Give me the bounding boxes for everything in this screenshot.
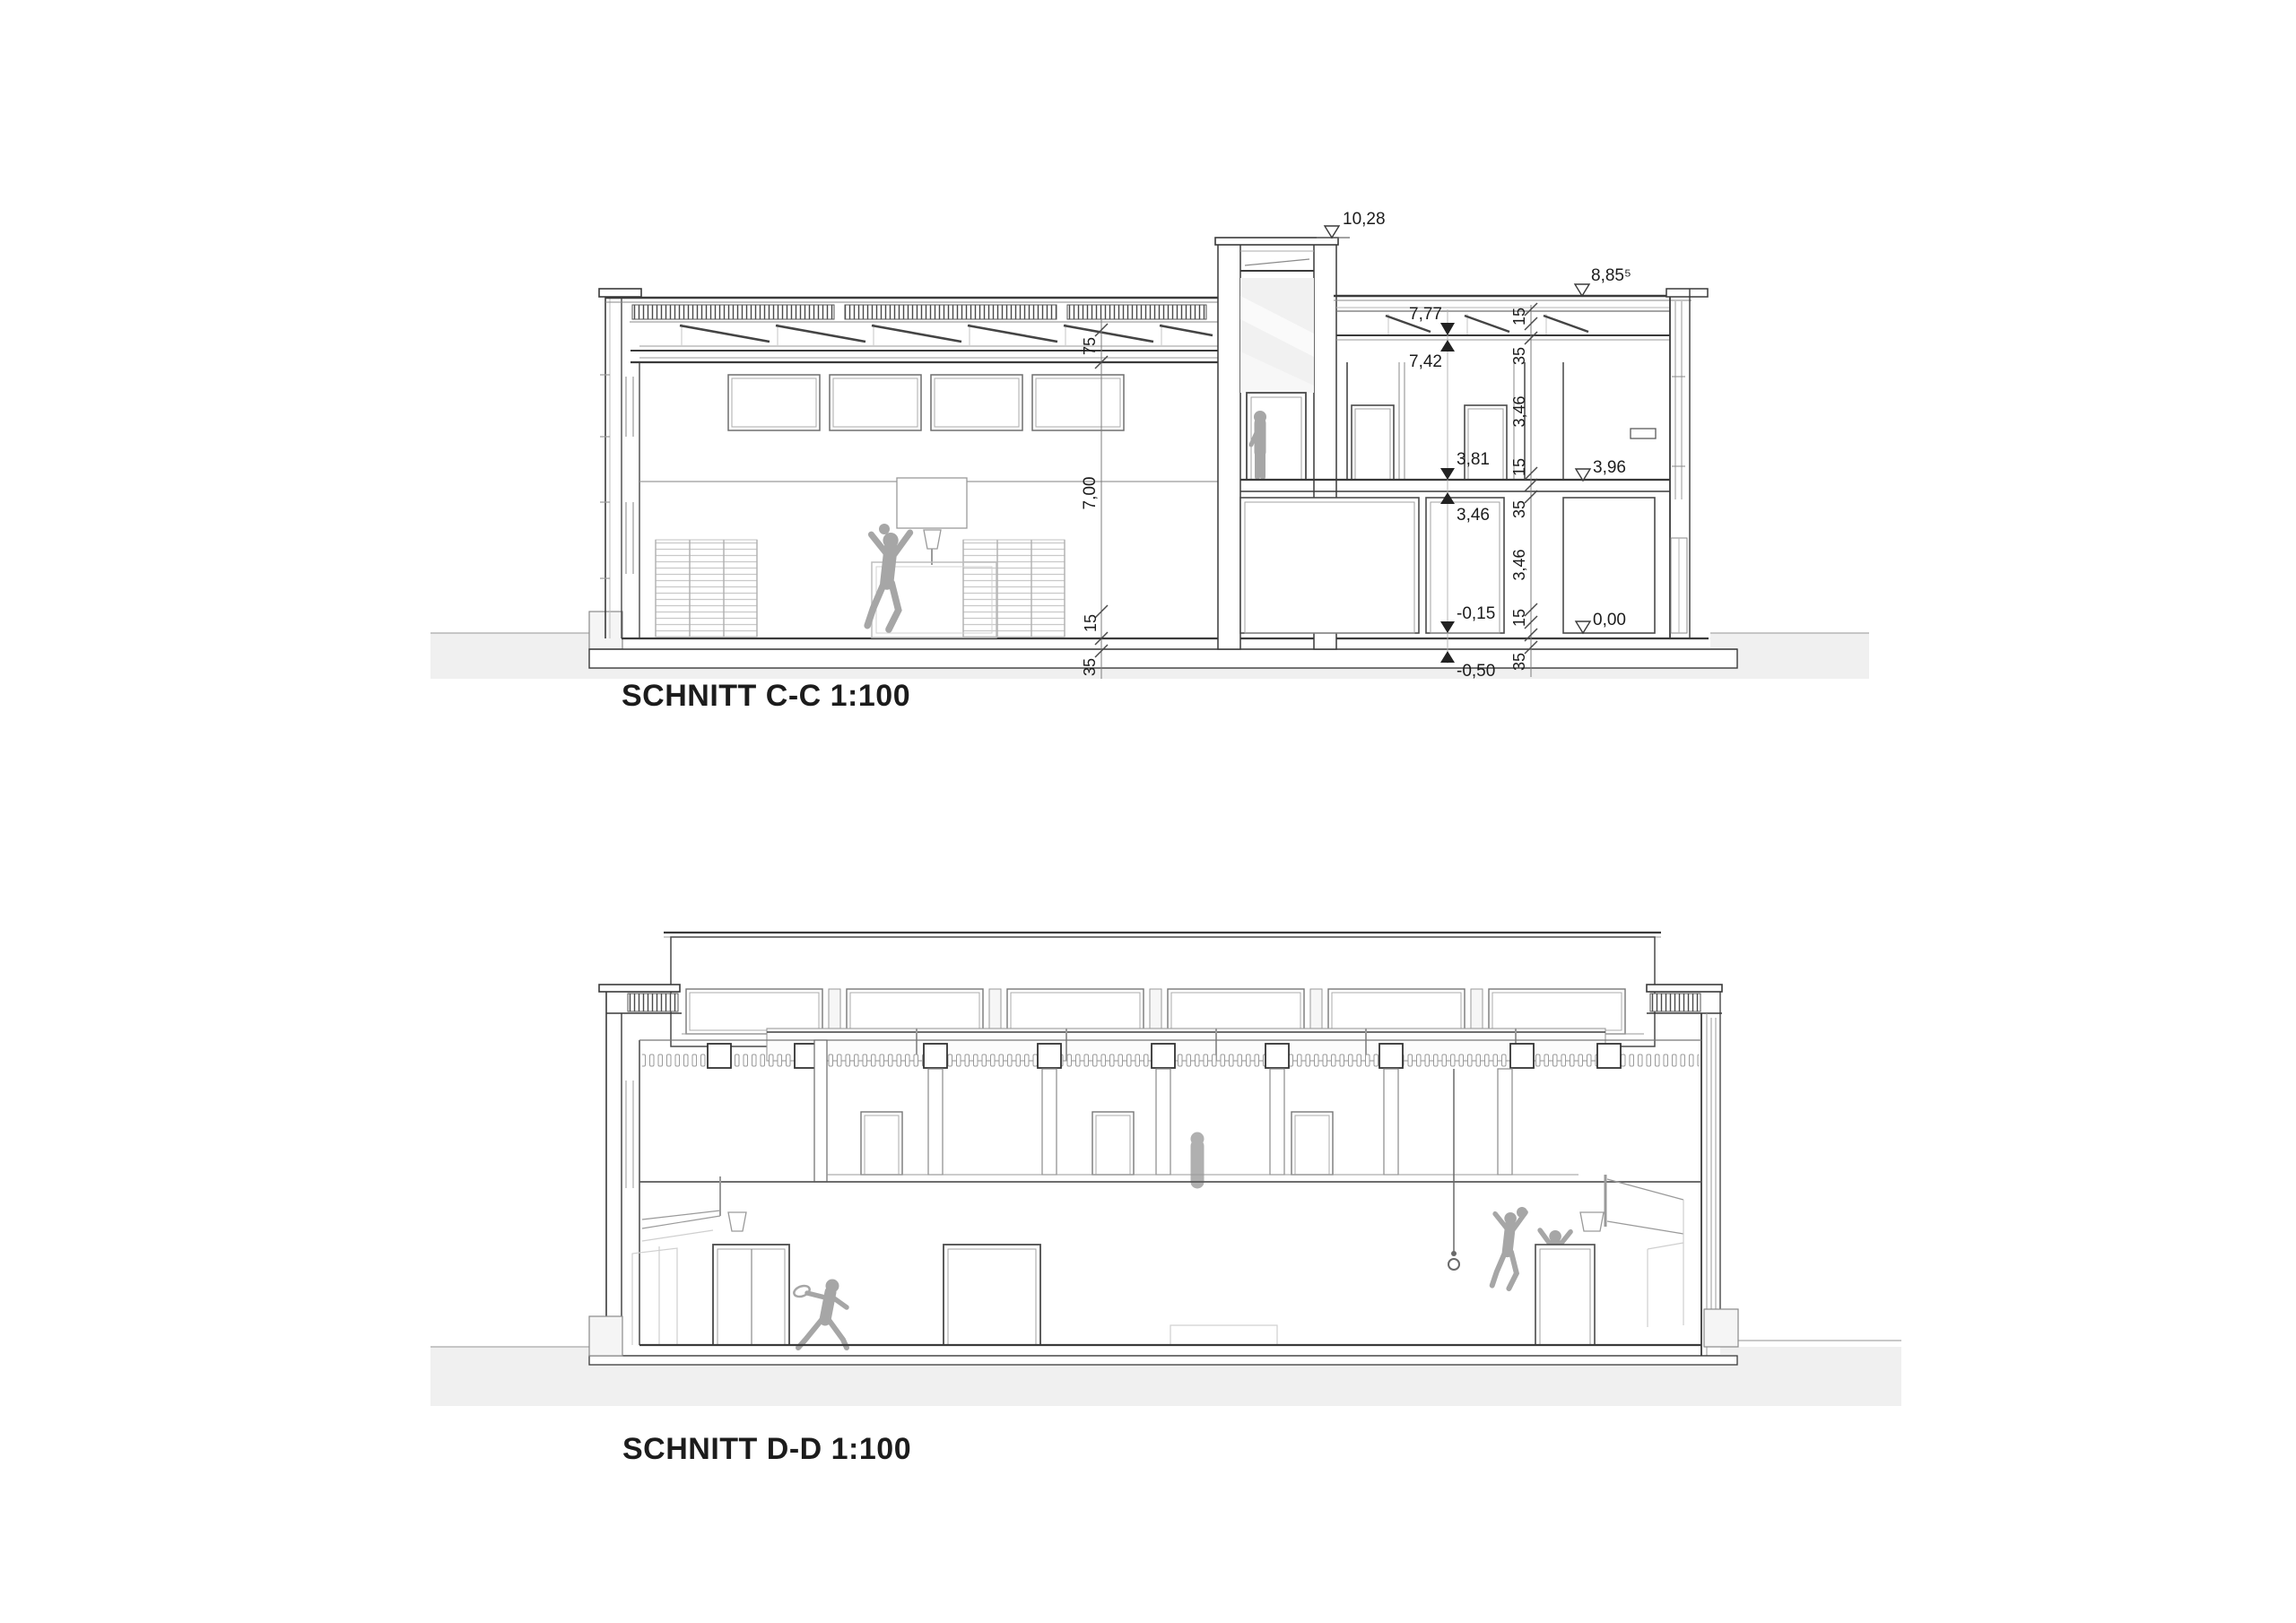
dim-chain-0: 15 xyxy=(1510,308,1528,325)
section-dd-title: SCHNITT D-D 1:100 xyxy=(622,1432,911,1466)
level-label-742: 7,42 xyxy=(1409,352,1442,371)
dim-chain-7: 35 xyxy=(1510,653,1528,671)
level-label-000: 0,00 xyxy=(1593,611,1626,629)
dim-chain-3: 15 xyxy=(1510,458,1528,476)
wall-bars-left xyxy=(656,540,757,637)
level-label-346: 3,46 xyxy=(1457,506,1490,525)
dim-chain-4: 35 xyxy=(1510,500,1528,518)
dim-chain-2: 3,46 xyxy=(1510,395,1528,427)
level-label-1028: 10,28 xyxy=(1343,210,1386,229)
level-label-396: 3,96 xyxy=(1593,458,1626,477)
roof-hatch-band xyxy=(632,305,1206,319)
dim-chain-5: 3,46 xyxy=(1510,549,1528,580)
level-label-381: 3,81 xyxy=(1457,450,1490,469)
level-tower-top: 10,28 xyxy=(1317,210,1386,238)
level-label-m015: -0,15 xyxy=(1457,604,1495,623)
drawing-sheet: 75 7,00 15 35 xyxy=(0,0,2296,1623)
dim-chain-1: 35 xyxy=(1510,347,1528,365)
dim-hall-height: 7,00 xyxy=(1081,477,1100,510)
dim-chain-6: 15 xyxy=(1510,609,1528,627)
level-label-m050: -0,50 xyxy=(1457,662,1495,681)
clerestory-box xyxy=(664,933,1661,1061)
section-cc-title: SCHNITT C-C 1:100 xyxy=(622,679,910,713)
double-door-left xyxy=(713,1245,789,1345)
section-cc: 75 7,00 15 35 xyxy=(430,210,1869,713)
level-label-777: 7,77 xyxy=(1409,305,1442,324)
upper-door-1 xyxy=(1352,405,1394,480)
tower-glazing xyxy=(1240,278,1314,393)
ball-icon xyxy=(879,524,890,534)
dim-floor-slab: 15 xyxy=(1082,614,1100,632)
section-dd: SCHNITT D-D 1:100 xyxy=(430,933,1901,1466)
wall-bars-right xyxy=(963,540,1065,637)
dim-roof-depth: 75 xyxy=(1081,337,1099,355)
door-middle xyxy=(944,1245,1040,1345)
level-label-885: 8,85⁵ xyxy=(1591,266,1631,285)
wall-shelf xyxy=(1631,429,1656,438)
door-right xyxy=(1535,1245,1595,1345)
plan-drawing: 75 7,00 15 35 xyxy=(0,0,2296,1623)
dim-foundation: 35 xyxy=(1081,658,1099,676)
